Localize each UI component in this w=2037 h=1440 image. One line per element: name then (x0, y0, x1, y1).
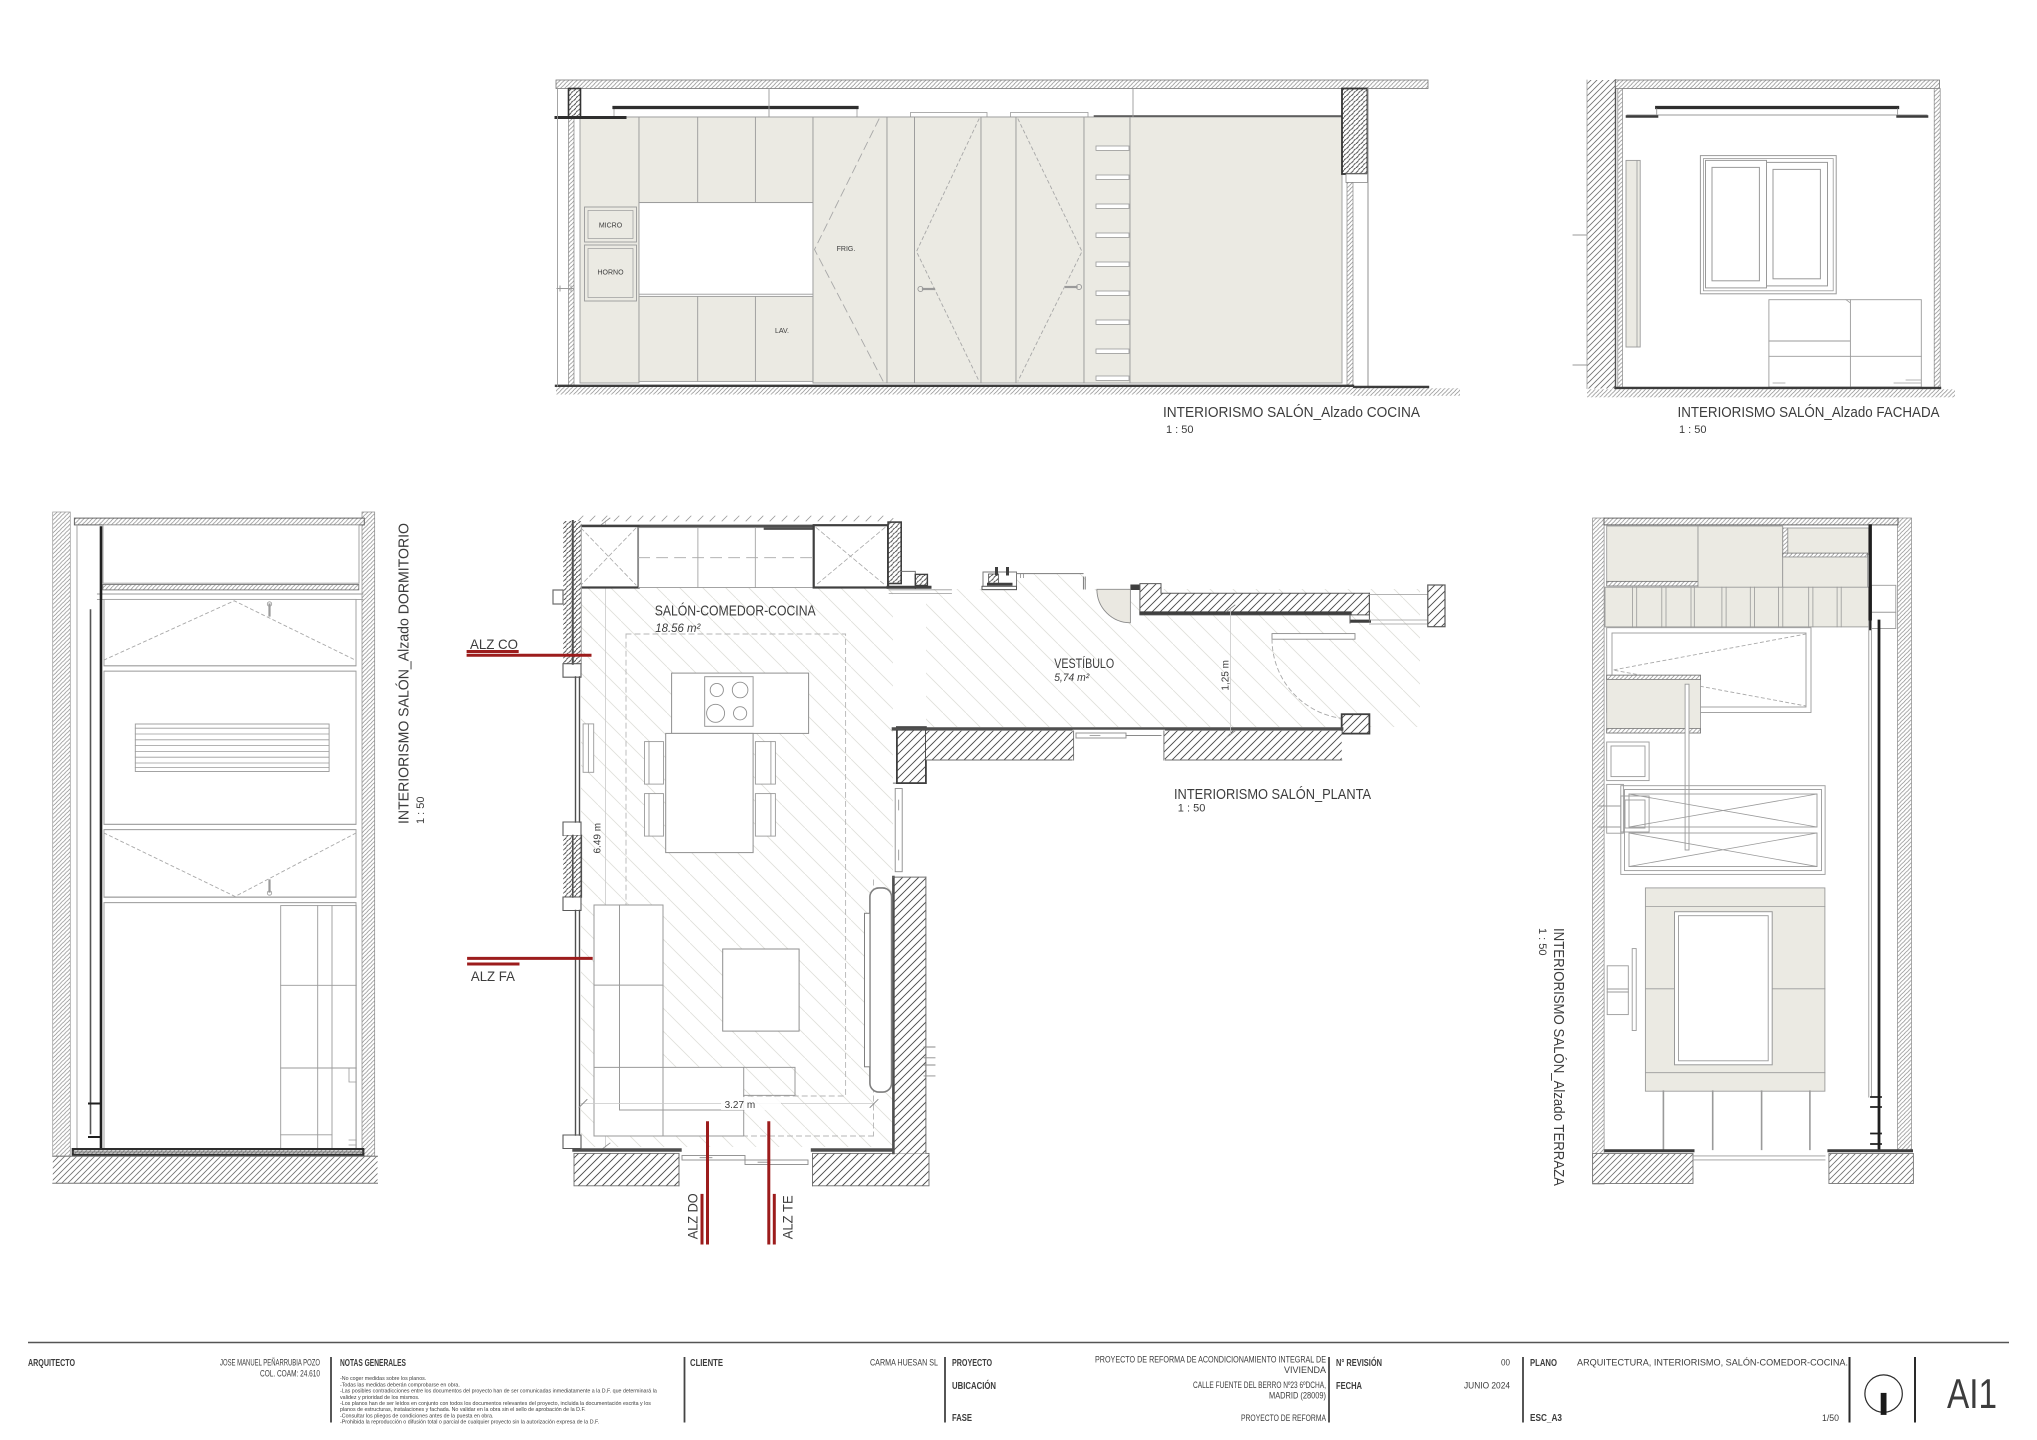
svg-text:-Consultar los pliegos de cond: -Consultar los pliegos de condiciones an… (340, 1413, 493, 1419)
svg-text:CLIENTE: CLIENTE (690, 1358, 723, 1369)
svg-text:1/50: 1/50 (1822, 1413, 1839, 1423)
svg-text:INTERIORISMO SALÓN_Alzado FACH: INTERIORISMO SALÓN_Alzado FACHADA (1678, 404, 1940, 421)
svg-text:LAV.: LAV. (775, 328, 789, 335)
svg-text:6.49 m: 6.49 m (593, 823, 604, 854)
svg-text:ARQUITECTO: ARQUITECTO (28, 1358, 75, 1369)
svg-text:N° REVISIÓN: N° REVISIÓN (1336, 1356, 1382, 1369)
svg-text:-Prohibida la reproducción o d: -Prohibida la reproducción o difusión to… (340, 1420, 599, 1426)
svg-text:1,25 m: 1,25 m (1221, 660, 1232, 691)
svg-text:UBICACIÓN: UBICACIÓN (952, 1379, 996, 1392)
svg-text:1 : 50: 1 : 50 (1679, 424, 1707, 436)
svg-text:validez y prioridad de los mis: validez y prioridad de los mismos. (340, 1395, 419, 1401)
svg-text:VESTÍBULO: VESTÍBULO (1054, 656, 1114, 671)
svg-text:3.27 m: 3.27 m (725, 1100, 756, 1111)
svg-text:-Los planos han de ser leídos: -Los planos han de ser leídos en conjunt… (340, 1401, 651, 1407)
svg-text:PROYECTO DE REFORMA DE ACONDIC: PROYECTO DE REFORMA DE ACONDICIONAMIENTO… (1095, 1355, 1326, 1365)
svg-text:INTERIORISMO SALÓN_PLANTA: INTERIORISMO SALÓN_PLANTA (1174, 786, 1371, 803)
svg-text:PLANO: PLANO (1530, 1358, 1557, 1369)
svg-text:00: 00 (1501, 1358, 1510, 1368)
svg-text:FRIG.: FRIG. (837, 246, 856, 253)
svg-text:1 : 50: 1 : 50 (1166, 424, 1194, 436)
svg-text:1 : 50: 1 : 50 (1178, 802, 1206, 814)
svg-text:-Las posibles contradicciones: -Las posibles contradicciones entre los … (340, 1389, 657, 1395)
svg-text:NOTAS GENERALES: NOTAS GENERALES (340, 1358, 406, 1369)
svg-text:CALLE FUENTE DEL BERRO Nº23 6º: CALLE FUENTE DEL BERRO Nº23 6ºDCHA, (1193, 1380, 1326, 1390)
svg-text:INTERIORISMO SALÓN_Alzado TERR: INTERIORISMO SALÓN_Alzado TERRAZA (1550, 928, 1567, 1186)
svg-text:INTERIORISMO SALÓN_Alzado DORM: INTERIORISMO SALÓN_Alzado DORMITORIO (396, 523, 413, 824)
svg-text:PROYECTO: PROYECTO (952, 1358, 992, 1369)
svg-text:planos de estructuras, instala: planos de estructuras, instalaciones y f… (340, 1407, 586, 1413)
svg-text:FASE: FASE (952, 1413, 972, 1424)
svg-text:ALZ FA: ALZ FA (471, 968, 516, 984)
svg-text:ARQUITECTURA, INTERIORISMO, SA: ARQUITECTURA, INTERIORISMO, SALÓN-COMEDO… (1577, 1358, 1848, 1368)
svg-text:SALÓN-COMEDOR-COCINA: SALÓN-COMEDOR-COCINA (655, 603, 816, 620)
svg-text:MADRID (28009): MADRID (28009) (1269, 1391, 1326, 1401)
svg-text:PROYECTO DE REFORMA: PROYECTO DE REFORMA (1241, 1413, 1326, 1423)
svg-text:1 : 50: 1 : 50 (415, 796, 427, 824)
svg-text:ALZ DO: ALZ DO (685, 1193, 701, 1239)
svg-text:ALZ CO: ALZ CO (470, 636, 518, 652)
svg-text:VIVIENDA: VIVIENDA (1284, 1365, 1326, 1375)
svg-text:JOSE MANUEL PEÑARRUBIA POZO: JOSE MANUEL PEÑARRUBIA POZO (220, 1358, 320, 1368)
svg-text:ALZ TE: ALZ TE (780, 1195, 796, 1239)
svg-text:INTERIORISMO SALÓN_Alzado COCI: INTERIORISMO SALÓN_Alzado COCINA (1163, 404, 1420, 421)
svg-text:MICRO: MICRO (599, 223, 623, 230)
svg-text:AI1: AI1 (1947, 1370, 1997, 1417)
svg-text:JUNIO 2024: JUNIO 2024 (1464, 1381, 1510, 1391)
svg-text:FECHA: FECHA (1336, 1381, 1362, 1392)
svg-text:18.56 m²: 18.56 m² (655, 621, 701, 635)
svg-text:-Todas las medidas deberán com: -Todas las medidas deberán comprobarse e… (340, 1382, 460, 1388)
svg-text:ESC_A3: ESC_A3 (1530, 1413, 1562, 1424)
svg-text:-No coger medidas sobre los pl: -No coger medidas sobre los planos. (340, 1376, 426, 1382)
svg-text:CARMA HUESAN SL: CARMA HUESAN SL (870, 1358, 938, 1368)
svg-text:COL. COAM: 24.610: COL. COAM: 24.610 (260, 1369, 320, 1379)
svg-text:1 : 50: 1 : 50 (1536, 928, 1548, 956)
svg-text:HORNO: HORNO (597, 270, 624, 277)
svg-text:5,74 m²: 5,74 m² (1054, 672, 1089, 684)
